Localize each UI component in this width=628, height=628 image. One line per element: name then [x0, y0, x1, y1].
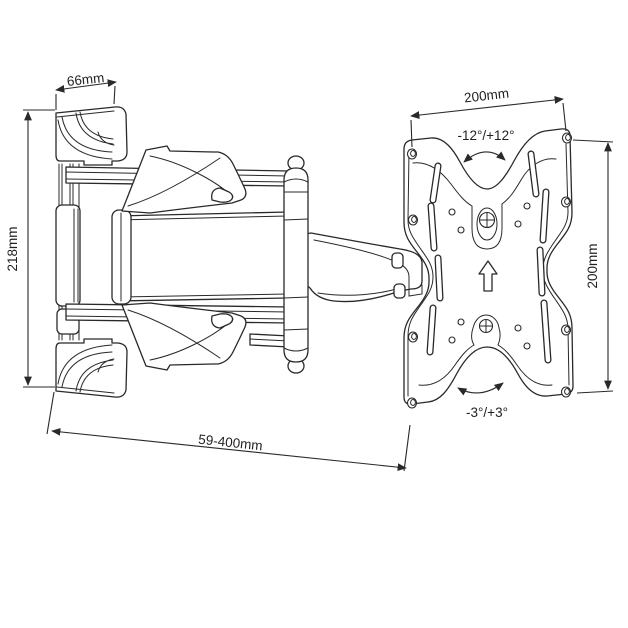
- extension-line: [47, 392, 410, 471]
- tilt-annotation: -3°/+3°: [458, 383, 508, 420]
- vesa-plate: [404, 129, 573, 408]
- front-arm-tab-lower: [394, 284, 405, 298]
- mounting-hole: [409, 215, 418, 225]
- front-arm: [294, 233, 422, 302]
- dim-arm-depth: 66mm: [56, 70, 116, 110]
- swivel-arc-arrow: [464, 152, 505, 162]
- dim-bracket-height-label: 218mm: [5, 226, 20, 271]
- mounting-hole: [409, 332, 418, 342]
- top-screw: [480, 213, 495, 228]
- dim-plate-height-label: 200mm: [585, 243, 600, 288]
- articulating-arm: [66, 146, 289, 370]
- mounting-hole: [563, 133, 572, 143]
- top-elbow: [56, 107, 127, 165]
- swivel-annotation: -12°/+12°: [458, 128, 515, 162]
- mounting-hole: [562, 197, 571, 207]
- mounting-hole: [562, 325, 571, 335]
- wall-channel-plate: [56, 205, 80, 306]
- tilt-range-label: -3°/+3°: [466, 405, 508, 420]
- tilt-arc-arrow: [458, 383, 503, 393]
- hinge-post: [284, 156, 308, 373]
- dim-plate-height: 200mm: [573, 140, 613, 393]
- lower-linkage: [122, 303, 246, 370]
- dim-plate-width-label: 200mm: [463, 86, 509, 106]
- bottom-elbow: [56, 339, 127, 397]
- mounting-hole: [408, 149, 417, 159]
- front-arm-tab-upper: [392, 253, 403, 268]
- extension-line: [56, 86, 115, 110]
- technical-drawing-page: 66mm 218mm 200mm 200mm 59-400mm -12°/+12…: [0, 0, 628, 628]
- dim-arm-depth-label: 66mm: [66, 70, 105, 89]
- upper-linkage: [122, 146, 246, 213]
- bottom-screw: [480, 320, 493, 333]
- mounting-hole: [408, 398, 417, 408]
- swivel-range-label: -12°/+12°: [458, 128, 515, 143]
- dim-extension-range: 59-400mm: [47, 392, 410, 471]
- wall-mount-dimension-diagram: 66mm 218mm 200mm 200mm 59-400mm -12°/+12…: [0, 0, 628, 628]
- hinge-shaft: [284, 168, 308, 362]
- mounting-hole: [562, 387, 571, 397]
- dim-bracket-height: 218mm: [5, 110, 55, 387]
- arm-body-plate: [117, 212, 288, 301]
